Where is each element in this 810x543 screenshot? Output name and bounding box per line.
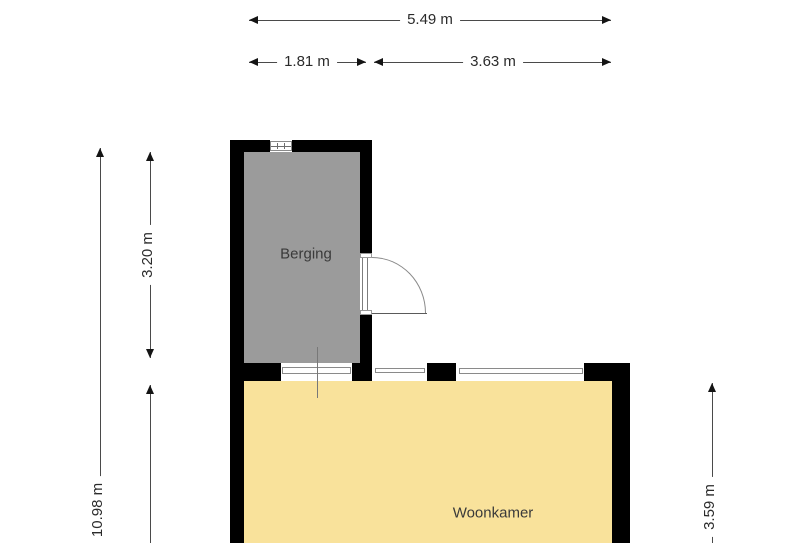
dim-left-upper-arrow-top <box>146 152 154 161</box>
dim-top-total-label: 5.49 m <box>400 12 460 29</box>
door-leaf <box>372 313 427 314</box>
wall-right <box>612 363 630 543</box>
wall-berging-top <box>230 140 372 152</box>
dim-top-total-arrow-left <box>249 16 258 24</box>
wall-mid-pillar <box>427 363 456 381</box>
window-middle-frame <box>375 368 425 373</box>
dim-top-right-arrow-right <box>602 58 611 66</box>
dim-right-lower-label: 3.59 m <box>702 477 719 537</box>
window-berging-top <box>270 140 292 152</box>
window-woonkamer-top-frame <box>459 368 583 374</box>
dim-right-lower-arrow-top <box>708 383 716 392</box>
dim-left-upper-arrow-bottom <box>146 349 154 358</box>
door-post-bottom <box>360 310 372 315</box>
dim-top-left-arrow-left <box>249 58 258 66</box>
room-woonkamer-label: Woonkamer <box>453 505 534 522</box>
room-berging-label: Berging <box>280 246 332 263</box>
dim-top-left-label: 1.81 m <box>277 54 337 71</box>
passage-marker-line <box>317 347 318 398</box>
dim-left-lower-line <box>150 385 151 543</box>
window-frame <box>270 141 292 151</box>
dim-left-total-label: 10.98 m <box>90 476 107 543</box>
dim-top-right-arrow-left <box>374 58 383 66</box>
door-frame <box>362 258 368 310</box>
door-swing-arc <box>372 257 426 313</box>
dim-top-total-arrow-right <box>602 16 611 24</box>
dim-top-right-label: 3.63 m <box>463 54 523 71</box>
room-woonkamer-floor <box>244 381 612 543</box>
wall-left <box>230 140 244 543</box>
door-post-top <box>360 253 372 258</box>
wall-mid-segment-a <box>230 363 281 381</box>
dim-left-lower-arrow-top <box>146 385 154 394</box>
floor-plan: Berging Woonkamer 5.49 m 1.81 m 3.63 m 1… <box>0 0 810 543</box>
wall-mid-segment-b <box>352 363 372 381</box>
dim-left-upper-label: 3.20 m <box>140 225 157 285</box>
dim-top-left-arrow-right <box>357 58 366 66</box>
dim-left-total-arrow-top <box>96 148 104 157</box>
